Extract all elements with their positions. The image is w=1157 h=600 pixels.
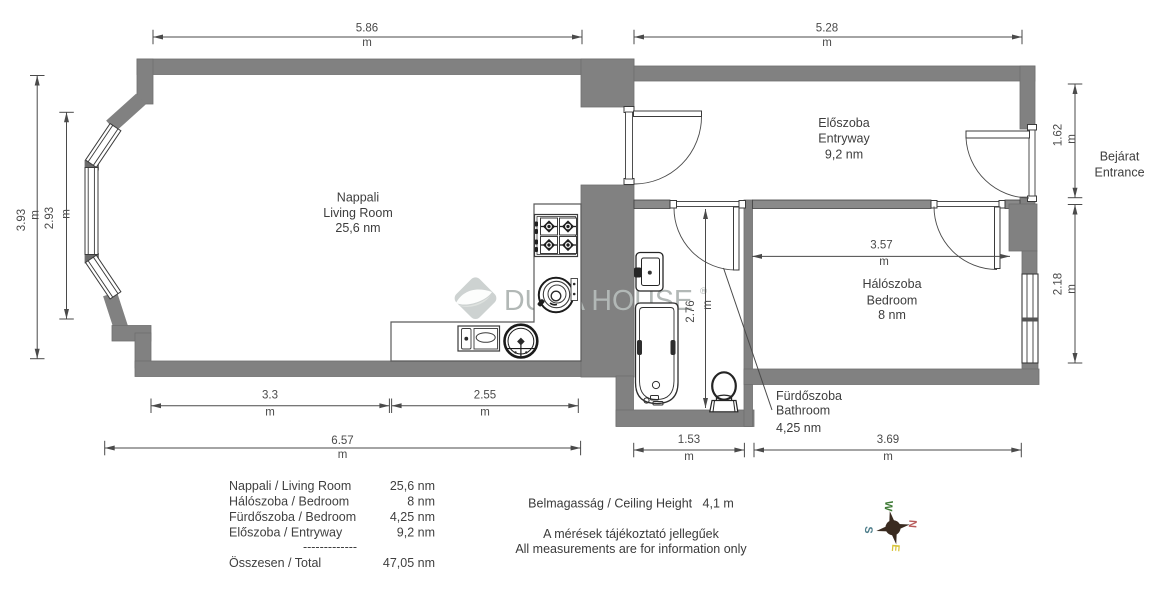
svg-text:47,05 nm: 47,05 nm bbox=[383, 556, 435, 570]
svg-text:Entrance: Entrance bbox=[1094, 166, 1144, 180]
svg-text:2.55: 2.55 bbox=[474, 390, 496, 402]
svg-text:E: E bbox=[889, 544, 902, 552]
svg-text:5.86: 5.86 bbox=[356, 23, 378, 35]
svg-text:1.53: 1.53 bbox=[678, 434, 700, 446]
svg-text:m: m bbox=[480, 407, 490, 419]
svg-text:Nappali: Nappali bbox=[337, 191, 379, 205]
svg-text:3.93: 3.93 bbox=[16, 209, 28, 231]
svg-text:Bedroom: Bedroom bbox=[867, 294, 918, 308]
svg-text:4,25 nm: 4,25 nm bbox=[390, 510, 435, 524]
svg-text:2.76: 2.76 bbox=[685, 300, 697, 322]
svg-text:m: m bbox=[879, 256, 889, 268]
svg-text:3.3: 3.3 bbox=[262, 390, 278, 402]
svg-text:8 nm: 8 nm bbox=[407, 495, 435, 509]
svg-text:8 nm: 8 nm bbox=[878, 308, 906, 322]
svg-text:Hálószoba / Bedroom: Hálószoba / Bedroom bbox=[229, 495, 349, 509]
svg-text:Living Room: Living Room bbox=[323, 206, 392, 220]
svg-text:Fürdőszoba: Fürdőszoba bbox=[776, 389, 842, 403]
svg-text:All measurements are for infor: All measurements are for information onl… bbox=[515, 542, 747, 556]
svg-text:2.93: 2.93 bbox=[44, 207, 56, 229]
svg-text:Előszoba: Előszoba bbox=[818, 116, 869, 130]
svg-text:Belmagasság / Ceiling Height: Belmagasság / Ceiling Height 4,1 m bbox=[528, 497, 734, 511]
svg-text:Entryway: Entryway bbox=[818, 132, 870, 146]
svg-text:m: m bbox=[684, 451, 694, 463]
svg-text:25,6 nm: 25,6 nm bbox=[335, 221, 380, 235]
svg-text:m: m bbox=[265, 407, 275, 419]
svg-text:Előszoba / Entryway: Előszoba / Entryway bbox=[229, 526, 343, 540]
svg-text:m: m bbox=[702, 300, 714, 310]
svg-text:4,25 nm: 4,25 nm bbox=[776, 421, 821, 435]
svg-text:m: m bbox=[362, 37, 372, 49]
svg-text:m: m bbox=[883, 451, 893, 463]
svg-text:Fürdőszoba / Bedroom: Fürdőszoba / Bedroom bbox=[229, 510, 356, 524]
svg-text:9,2 nm: 9,2 nm bbox=[825, 148, 863, 162]
svg-text:5.28: 5.28 bbox=[816, 23, 838, 35]
svg-text:m: m bbox=[338, 449, 348, 461]
svg-text:m: m bbox=[1066, 284, 1078, 294]
svg-text:m: m bbox=[30, 210, 42, 220]
svg-text:S: S bbox=[862, 526, 875, 534]
svg-text:Nappali / Living Room: Nappali / Living Room bbox=[229, 479, 351, 493]
svg-text:m: m bbox=[61, 209, 73, 219]
svg-text:-------------: ------------- bbox=[303, 540, 357, 554]
svg-text:Bathroom: Bathroom bbox=[776, 404, 830, 418]
svg-text:25,6 nm: 25,6 nm bbox=[390, 479, 435, 493]
svg-text:Bejárat: Bejárat bbox=[1100, 150, 1140, 164]
svg-text:3.69: 3.69 bbox=[877, 434, 899, 446]
svg-text:W: W bbox=[882, 500, 895, 512]
svg-text:N: N bbox=[906, 519, 919, 528]
svg-text:2.18: 2.18 bbox=[1053, 273, 1065, 295]
svg-text:6.57: 6.57 bbox=[331, 435, 353, 447]
svg-text:m: m bbox=[1066, 134, 1078, 144]
svg-text:m: m bbox=[822, 37, 832, 49]
svg-text:9,2 nm: 9,2 nm bbox=[397, 526, 435, 540]
svg-text:1.62: 1.62 bbox=[1053, 124, 1065, 146]
svg-text:Összesen / Total: Összesen / Total bbox=[229, 556, 321, 570]
svg-text:3.57: 3.57 bbox=[870, 240, 892, 252]
svg-text:A mérések tájékoztató jellegűe: A mérések tájékoztató jellegűek bbox=[543, 527, 720, 541]
svg-text:Hálószoba: Hálószoba bbox=[862, 277, 921, 291]
